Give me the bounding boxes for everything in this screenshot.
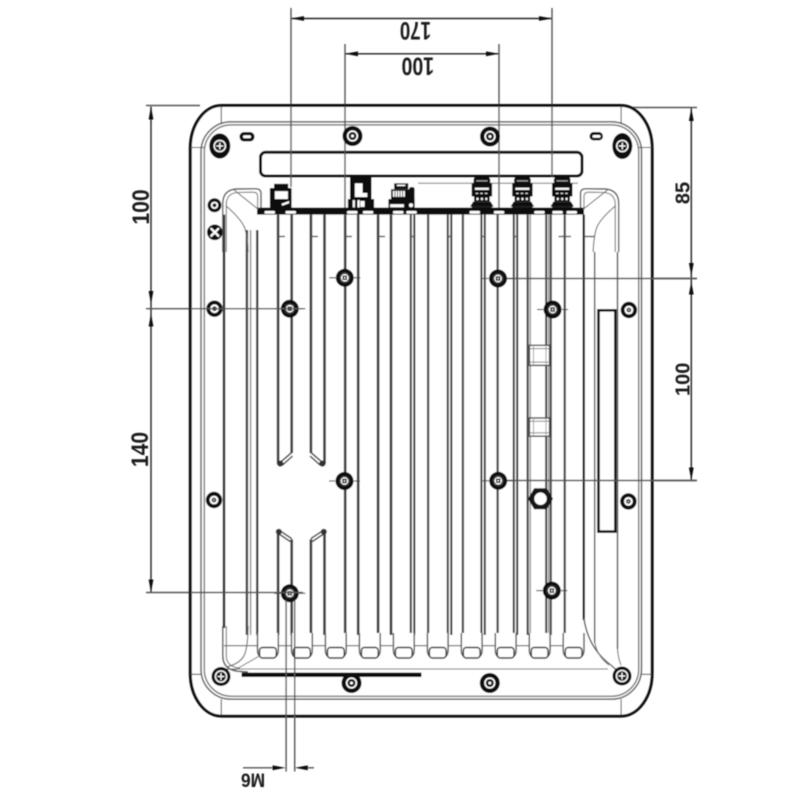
svg-text:100: 100 — [128, 189, 155, 224]
svg-text:140: 140 — [127, 432, 154, 467]
svg-text:100: 100 — [673, 363, 695, 396]
svg-text:85: 85 — [672, 182, 694, 204]
svg-text:M6: M6 — [241, 769, 265, 791]
svg-text:100: 100 — [402, 52, 435, 80]
svg-text:170: 170 — [400, 17, 431, 45]
